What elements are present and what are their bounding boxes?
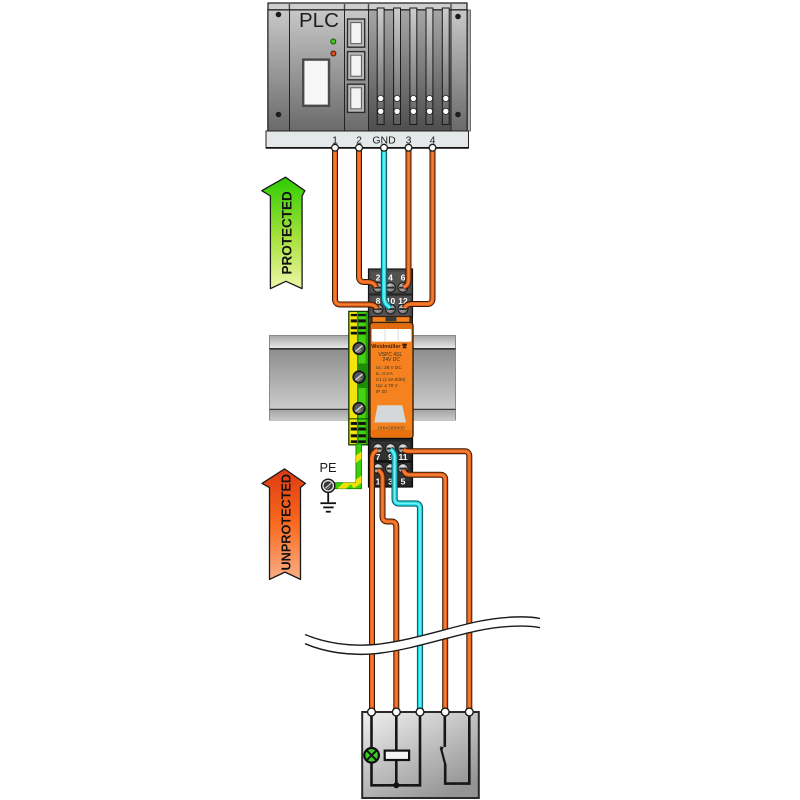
svg-text:2: 2 [376,273,381,283]
svg-text:IP 20: IP 20 [376,389,387,394]
svg-text:Weidmüller: Weidmüller [371,344,400,350]
svg-text:IL: 0.3 A: IL: 0.3 A [376,371,394,376]
svg-text:1064280000: 1064280000 [377,426,405,431]
svg-text:6: 6 [401,273,406,283]
svg-text:PLC: PLC [299,9,339,32]
svg-text:4: 4 [388,273,393,283]
svg-text:UNPROTECTED: UNPROTECTED [280,474,294,571]
svg-text:Up: ≤ 70 V: Up: ≤ 70 V [376,383,399,388]
svg-text:5: 5 [401,477,406,487]
svg-text:PROTECTED: PROTECTED [280,191,295,275]
svg-text:PE: PE [320,460,337,475]
svg-text:Uc: 28 V DC: Uc: 28 V DC [376,365,402,370]
svg-text:C1 (1 kA 8/20): C1 (1 kA 8/20) [376,377,406,382]
svg-text:24V DC: 24V DC [382,357,400,363]
